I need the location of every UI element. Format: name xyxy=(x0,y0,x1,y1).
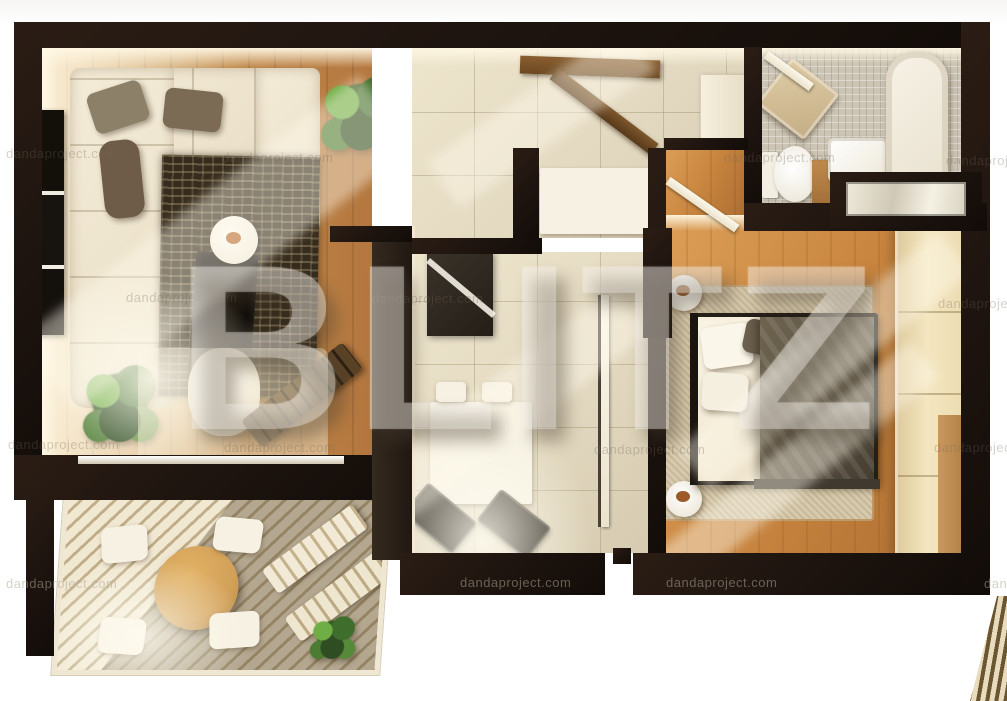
washing-machine xyxy=(762,58,839,141)
watermark-text: dandaproject.com xyxy=(938,296,1007,311)
watermark-text: dandaproject.com xyxy=(460,575,571,590)
wall-step xyxy=(613,548,631,564)
wall-bath-left xyxy=(744,47,762,207)
adjacent-deck-corner xyxy=(962,596,1007,701)
wardrobe-wood-panel xyxy=(938,415,962,557)
floor-plan-render: dandaproject.com dandaproject.com dandap… xyxy=(0,0,1007,701)
watermark-text: dandaproject.com xyxy=(8,437,119,452)
brand-watermark: BLITZ xyxy=(148,232,912,472)
watermark-text: dandaproject.com xyxy=(724,150,835,165)
watermark-text: dandaproject.com xyxy=(6,576,117,591)
wall-top xyxy=(14,22,987,48)
wall-entry-top xyxy=(664,138,748,150)
watermark-text: dandaproject.com xyxy=(946,153,1007,168)
wall-left xyxy=(14,22,42,500)
watermark-text: dandaproject.com xyxy=(934,440,1007,455)
watermark-text: dandaproject.com xyxy=(222,150,333,165)
wall-light-edge xyxy=(42,48,372,68)
pastry-decor xyxy=(676,491,690,502)
watermark-text: dandaproject.com xyxy=(6,146,117,161)
terrace-chair xyxy=(212,516,265,554)
watermark-text: dandaproject.com xyxy=(984,576,1007,591)
vanity-mirror xyxy=(846,182,966,216)
wall-balcony-left xyxy=(26,478,54,656)
sofa-pillow xyxy=(162,87,224,133)
watermark-text: dandaproject.com xyxy=(666,575,777,590)
